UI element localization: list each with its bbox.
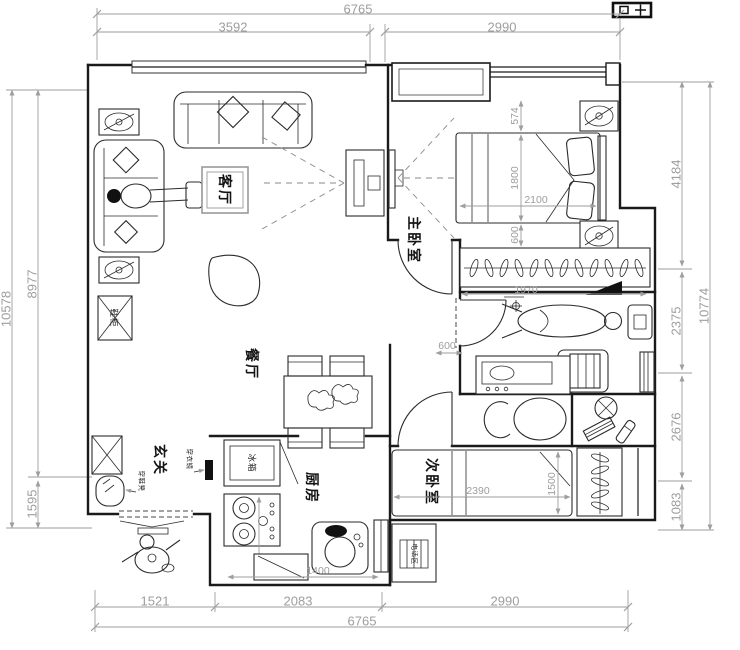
living-room: 客厅 鞋柜 xyxy=(94,92,384,340)
dim-bottom-overall: 6765 xyxy=(348,614,377,629)
speaker-icon xyxy=(99,109,139,135)
dim-left-overall: 10578 xyxy=(0,291,14,327)
dimension-left: 10578 8977 1595 xyxy=(0,90,92,528)
sofa-two-seat xyxy=(94,140,164,252)
dim-bottom-1: 1521 xyxy=(141,594,170,609)
dim-top-overall: 6765 xyxy=(344,2,373,17)
dim-bottom-3: 2990 xyxy=(491,594,520,609)
dining-table xyxy=(284,356,372,448)
entry-door-opening xyxy=(119,511,193,534)
room-label-entry: 玄关 xyxy=(152,444,168,476)
room-label-living: 客厅 xyxy=(217,173,233,206)
dim-right-1: 4184 xyxy=(669,160,684,189)
fridge-label: 冰箱 xyxy=(247,453,257,472)
exterior-platform: 电话区 xyxy=(392,524,436,582)
dim-top-right: 2990 xyxy=(488,20,517,35)
dim-right-overall: 10774 xyxy=(697,288,712,324)
dim-right-4: 1083 xyxy=(669,493,684,522)
person-figure xyxy=(502,304,622,338)
phone-icon xyxy=(615,419,636,444)
dim-600-door: 600 xyxy=(438,340,456,352)
round-table xyxy=(484,398,566,440)
wardrobe xyxy=(460,248,650,287)
dim-2100: 2100 xyxy=(524,194,548,206)
dim-1500: 1500 xyxy=(546,472,558,496)
shoe-cabinet-label: 鞋柜 xyxy=(109,308,119,327)
speaker-icon xyxy=(580,221,618,251)
second-bedroom-door xyxy=(398,392,452,446)
dim-1970: 1970 xyxy=(514,284,538,296)
dim-right-3: 2676 xyxy=(669,413,684,442)
dimension-bottom: 1521 2083 2990 6765 xyxy=(91,590,632,632)
single-bed xyxy=(392,450,572,516)
tv-cabinet xyxy=(346,150,384,216)
vanity-sink xyxy=(476,356,570,394)
phone-area-label: 电话区 xyxy=(411,544,420,565)
bath-door-dimension: 600 xyxy=(436,340,462,353)
room-label-master-bedroom: 主卧室 xyxy=(406,216,422,264)
bedroom-tv xyxy=(389,150,403,208)
dimension-top: 6765 3592 2990 xyxy=(93,2,624,63)
dim-top-left: 3592 xyxy=(219,20,248,35)
shoe-bench-label: 穿鞋凳 xyxy=(138,471,147,492)
dressing-area xyxy=(484,397,636,444)
tv-sightlines xyxy=(262,137,344,229)
duct-shaft xyxy=(640,352,654,392)
bathroom-door xyxy=(456,298,506,348)
side-stool xyxy=(628,305,652,339)
double-bed xyxy=(456,133,606,223)
dim-1800: 1800 xyxy=(509,166,521,190)
dim-right-2: 2375 xyxy=(669,307,684,336)
shoe-cabinet xyxy=(92,436,122,474)
keyboard-icon xyxy=(583,417,615,441)
kitchen: 厨房 冰箱 xyxy=(224,440,388,580)
shoe-bench xyxy=(96,476,124,506)
person-figure xyxy=(122,535,180,573)
room-label-second-bedroom: 次卧室 xyxy=(424,458,440,506)
bathroom: 600 xyxy=(436,304,654,394)
ceiling-fan-icon xyxy=(595,397,617,419)
flue-shaft xyxy=(374,520,388,572)
entry: 玄关 穿衣镜 穿鞋凳 xyxy=(92,436,204,573)
dim-574: 574 xyxy=(509,107,521,125)
master-bedroom: 主卧室 xyxy=(389,101,650,312)
dim-left-2: 1595 xyxy=(25,490,40,519)
floor-plan-drawing: 6765 3592 2990 1521 2083 2990 6765 10578 xyxy=(0,0,740,650)
dim-1400: 1400 xyxy=(306,565,330,577)
side-cabinet: 鞋柜 xyxy=(98,296,132,340)
floor-plan-canvas: 6765 3592 2990 1521 2083 2990 6765 10578 xyxy=(0,0,740,650)
dimension-right: 4184 2375 2676 1083 10774 xyxy=(622,82,714,530)
speaker-icon xyxy=(580,101,618,131)
floor-drain-icon xyxy=(504,297,524,312)
dressing-mirror-label: 穿衣镜 xyxy=(186,449,195,470)
sofa-three-seat xyxy=(174,92,312,148)
speaker-icon xyxy=(99,257,139,283)
dim-600-bed: 600 xyxy=(509,226,521,244)
dim-left-1: 8977 xyxy=(25,270,40,299)
fridge: 冰箱 xyxy=(224,440,298,486)
dish-rack xyxy=(254,554,308,580)
dim-2390: 2390 xyxy=(466,485,490,497)
dim-bottom-2: 2083 xyxy=(284,594,313,609)
gas-stove xyxy=(224,494,280,546)
room-label-kitchen: 厨房 xyxy=(304,472,320,504)
second-bedroom: 次卧室 2390 1500 电话区 xyxy=(392,448,638,582)
wardrobe xyxy=(577,448,638,516)
lounge-chair xyxy=(209,255,260,306)
dining-room: 餐厅 xyxy=(244,347,372,448)
room-label-dining: 餐厅 xyxy=(244,347,260,380)
mirror-wall-stub xyxy=(205,460,213,480)
